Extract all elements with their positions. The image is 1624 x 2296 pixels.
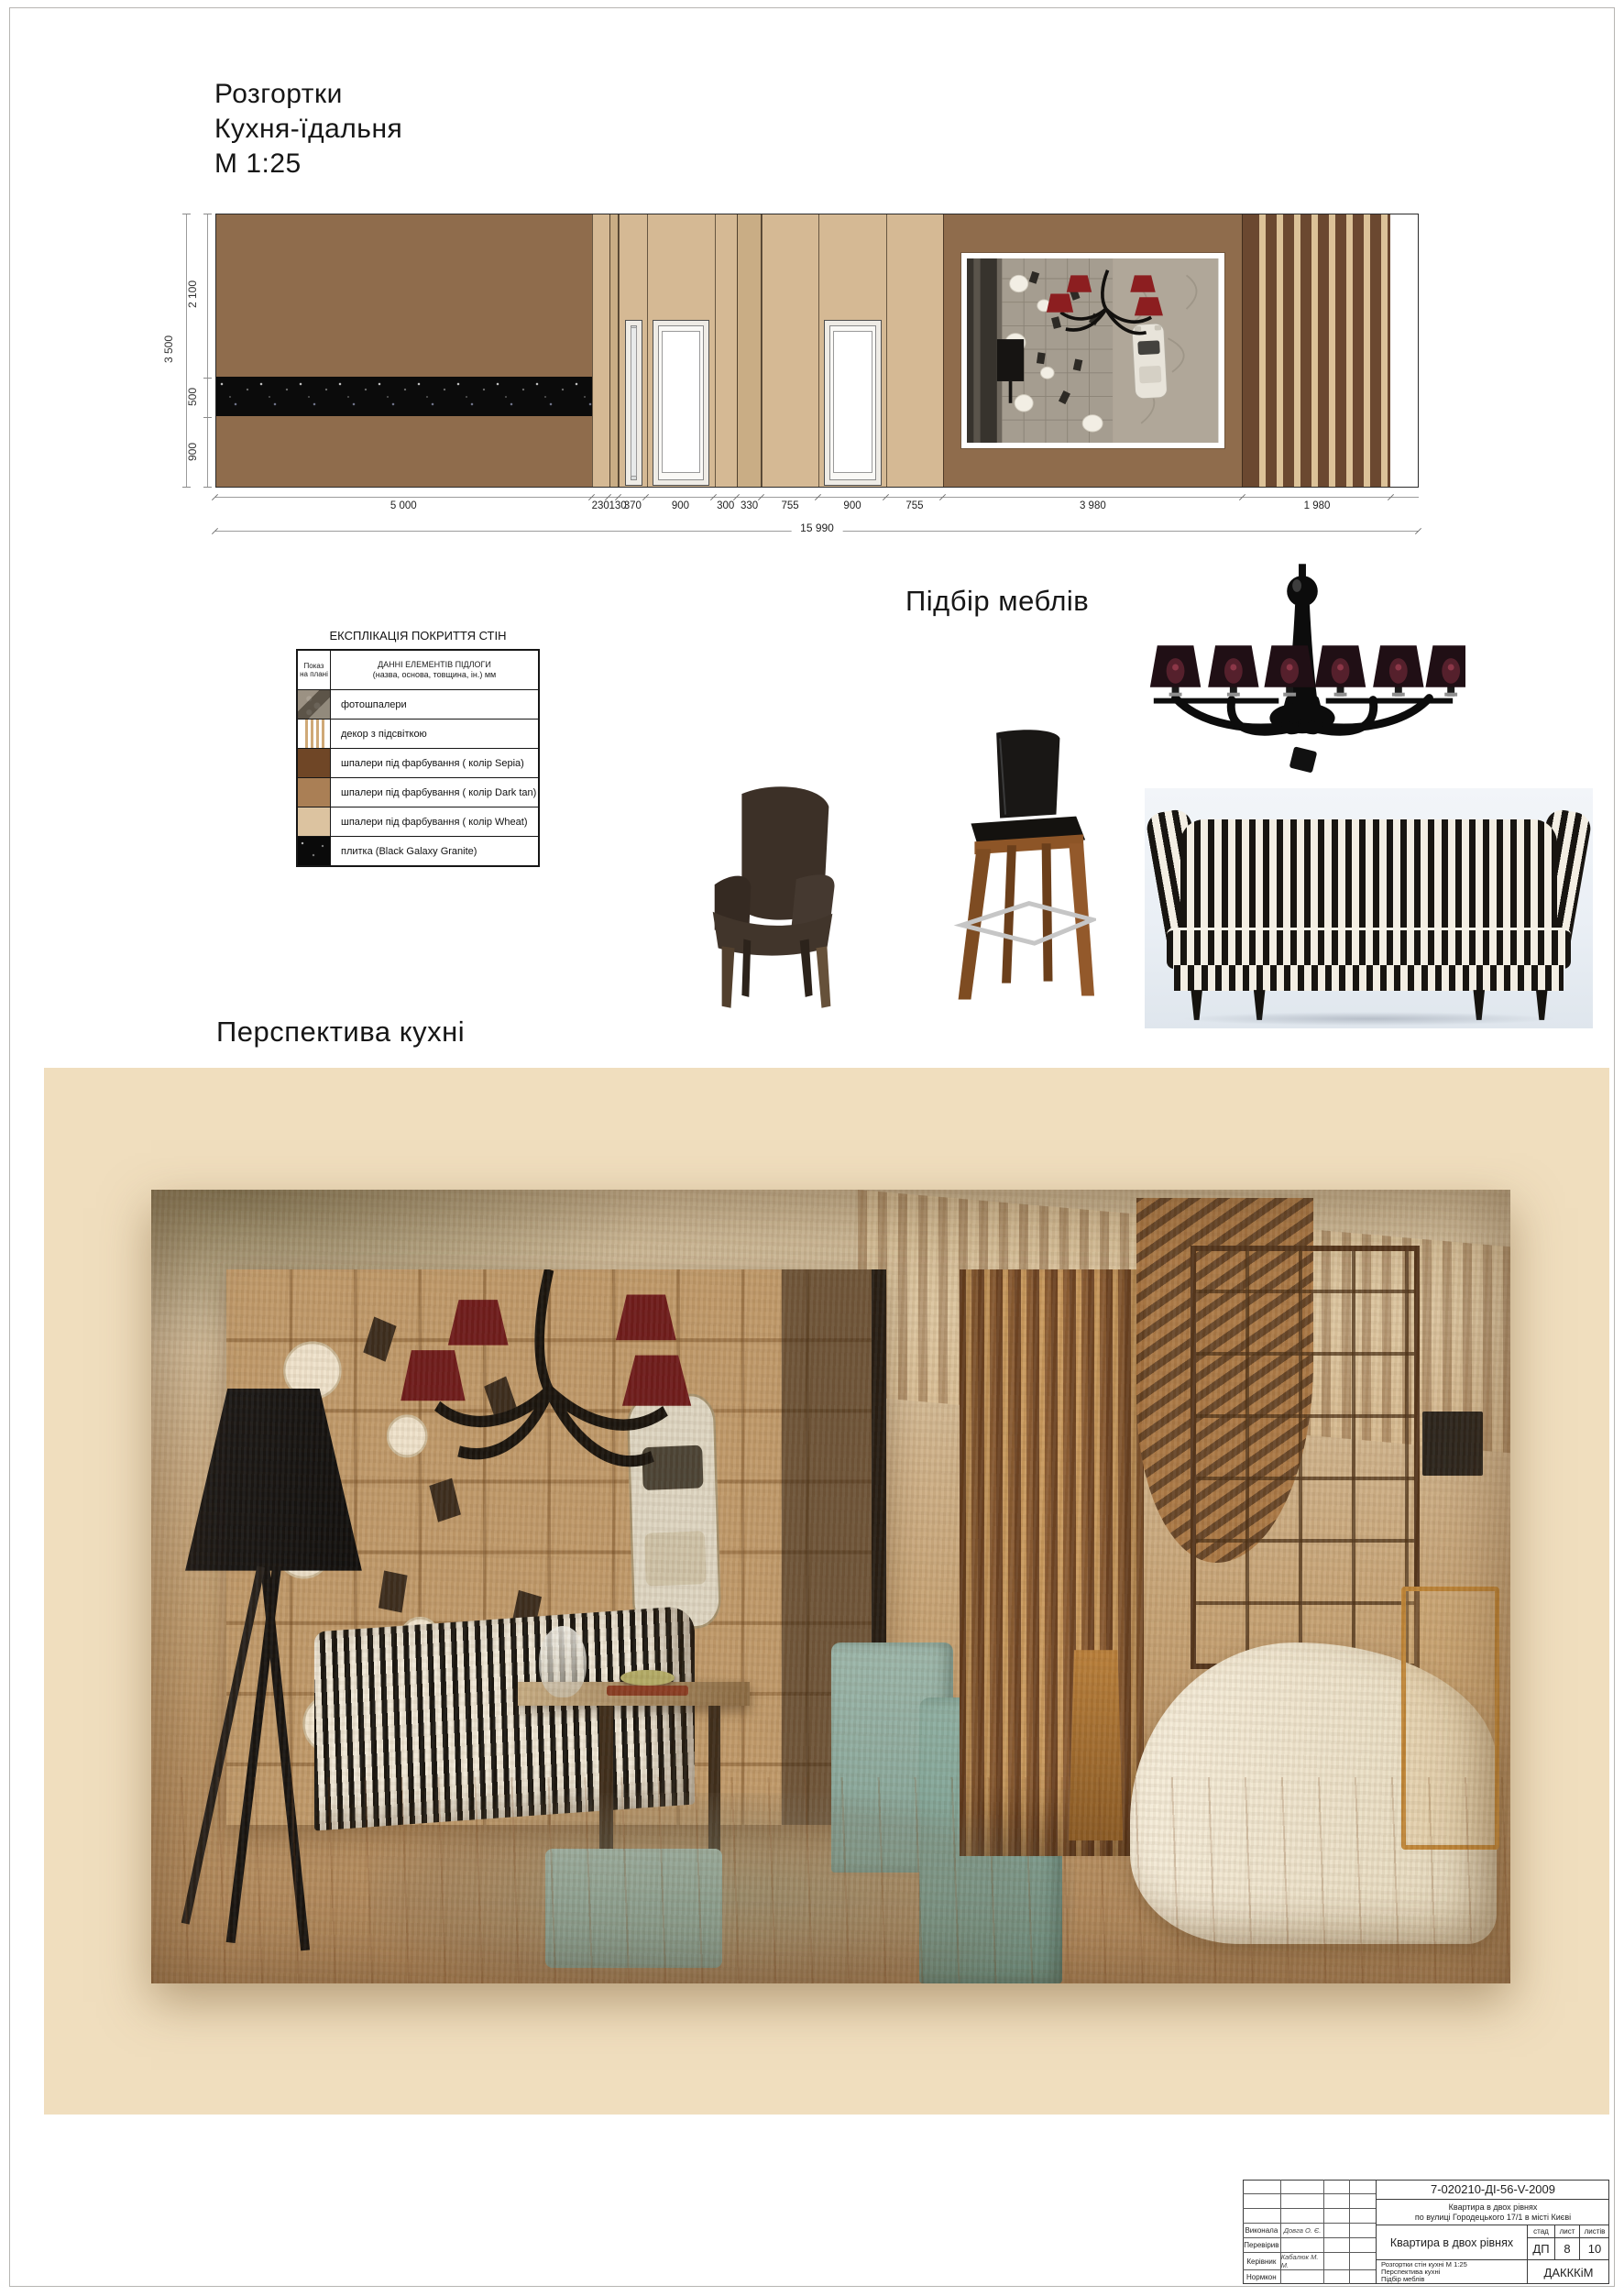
dim-mark [182,487,191,488]
kitchen-wall-elevation [215,214,1419,488]
dim-segment-label: 755 [762,493,818,515]
legend-swatch-plain [298,749,331,777]
object-description: Квартира в двох рівнях по вулиці Городец… [1377,2200,1609,2225]
legend-title: ЕКСПЛІКАЦІЯ ПОКРИТТЯ СТІН [296,629,540,643]
project-title-cell: Квартира в двох рівнях [1377,2225,1528,2260]
sheet-title-line3: М 1:25 [214,147,402,181]
signature-cell [1324,2238,1350,2252]
signature-name [1281,2238,1325,2252]
dim-segment-label: 330 [737,493,762,515]
signature-cell [1243,2209,1281,2223]
dim-mark [203,417,212,418]
armchair-image [689,777,861,1014]
bar-stool-icon [924,722,1096,1014]
signature-cell [1281,2180,1325,2193]
legend-row-label: шпалери під фарбування ( колір Sepia) [331,749,538,777]
signature-cell [1324,2209,1350,2223]
signature-cell [1324,2194,1350,2208]
dim-segment-label: 3 980 [943,493,1243,515]
sofa-shadow [1180,1012,1557,1027]
dim-mark [203,378,212,379]
document-number: 7-020210-ДІ-56-V-2009 [1377,2180,1609,2200]
sheet-title: Розгортки Кухня-їдальня М 1:25 [214,77,402,181]
legend-header-data-line2: (назва, основа, товщина, ін.) мм [373,670,496,680]
object-line2: по вулиці Городецького 17/1 в місті Києв… [1415,2213,1571,2223]
dim-label-900: 900 [186,434,199,470]
signature-row: Нормкон [1243,2270,1376,2284]
sheet-contents-line3: Підбір меблів [1381,2276,1527,2283]
striped-sofa-image [1145,788,1593,1028]
sheet-title-line2: Кухня-їдальня [214,112,402,147]
elevation-segment-370mm [619,214,646,487]
dim-segment-label: 5 000 [215,493,592,515]
dim-segment-label: 755 [886,493,943,515]
signature-cell [1281,2209,1325,2223]
signature-cell [1324,2270,1350,2284]
legend-table: Показ на плані ДАННІ ЕЛЕМЕНТІВ ПІДЛОГИ (… [296,649,540,867]
stage-sheet-values: ДП 8 10 [1528,2238,1609,2259]
dim-segment-label: 370 [619,493,646,515]
elevation-segment-300mm [715,214,738,487]
signature-row-blank [1243,2180,1376,2194]
signature-cell [1350,2238,1376,2252]
signature-row-blank [1243,2209,1376,2224]
legend-row-label: декор з підсвіткою [331,720,538,748]
chandelier-image [1139,553,1465,784]
sheet-contents: Розгортки стін кухні М 1:25 Перспектива … [1377,2260,1528,2284]
stage-sheet-grid: стад лист листів ДП 8 10 [1528,2225,1609,2260]
sheet-label: лист [1555,2225,1580,2237]
legend-header-symbol: Показ на плані [298,651,331,689]
signature-role: Керівник [1243,2253,1281,2269]
dim-mark [203,487,212,488]
title-block: ВиконалаДовга О. Є.ПеревіривКерівникКаба… [1243,2180,1609,2284]
signature-cell [1350,2224,1376,2237]
legend-swatch-granite [298,837,331,865]
title-block-signatures: ВиконалаДовга О. Є.ПеревіривКерівникКаба… [1243,2180,1377,2284]
signature-cell [1243,2194,1281,2208]
elevation-segment-230mm [592,214,609,487]
legend-swatch-backlit [298,720,331,748]
persp-vignette [151,1190,1510,1983]
elevation-segment-900mm [818,214,886,487]
sheet-value: 8 [1555,2238,1580,2259]
elevation-segment-755mm [762,214,818,487]
kitchen-perspective-rendering [151,1190,1510,1983]
dim-label-500: 500 [186,379,199,415]
signature-cell [1324,2253,1350,2269]
signature-cell [1350,2270,1376,2284]
legend-row: шпалери під фарбування ( колір Sepia) [298,748,538,777]
dim-line-height-segments [207,214,208,488]
legend-swatch-plain [298,778,331,807]
dim-row-segments: 5 0002301303709003003307559007553 9801 9… [215,493,1419,515]
legend-row: шпалери під фарбування ( колір Wheat) [298,807,538,836]
signature-cell [1281,2194,1325,2208]
perspective-section-title: Перспектива кухні [216,1016,465,1049]
dim-mark [203,214,212,214]
signature-row: КерівникКабалюк М. М. [1243,2253,1376,2270]
dim-tick [212,494,218,500]
elevation-segment-130mm [609,214,620,487]
signature-cell [1350,2253,1376,2269]
signature-name: Довга О. Є. [1281,2224,1325,2237]
dim-segment-label: 900 [646,493,714,515]
title-block-main: 7-020210-ДІ-56-V-2009 Квартира в двох рі… [1377,2180,1609,2284]
signature-name: Кабалюк М. М. [1281,2253,1325,2269]
elevation-segment-330mm [737,214,762,487]
granite-tile-band [216,377,592,416]
stage-label: стад [1528,2225,1555,2237]
narrow-glass-door [625,320,642,486]
dim-label-3500: 3 500 [162,320,175,379]
legend-row: плитка (Black Galaxy Granite) [298,836,538,865]
signature-cell [1350,2194,1376,2208]
wall-finish-legend: ЕКСПЛІКАЦІЯ ПОКРИТТЯ СТІН Показ на плані… [296,629,540,867]
sheets-label: листів [1580,2225,1609,2237]
signature-row: Перевірив [1243,2238,1376,2253]
signature-name [1281,2270,1325,2284]
elevation-segment-3980mm [943,214,1242,487]
signature-cell [1243,2180,1281,2193]
legend-row-label: плитка (Black Galaxy Granite) [331,837,538,865]
signature-cell [1350,2209,1376,2223]
signature-cell [1324,2180,1350,2193]
stage-value: ДП [1528,2238,1555,2259]
legend-row-label: шпалери під фарбування ( колір Wheat) [331,807,538,836]
dim-label-2100: 2 100 [186,265,199,324]
photo-wallpaper-mural [961,253,1223,449]
legend-header-data-line1: ДАННІ ЕЛЕМЕНТІВ ПІДЛОГИ [378,660,491,670]
dim-segment-label: 300 [714,493,737,515]
legend-row: фотошпалери [298,690,538,719]
signature-role: Нормкон [1243,2270,1281,2284]
legend-header-row: Показ на плані ДАННІ ЕЛЕМЕНТІВ ПІДЛОГИ (… [298,651,538,690]
dim-tick [1415,528,1421,534]
dim-row-total: 15 990 [215,524,1419,544]
legend-row: декор з підсвіткою [298,719,538,748]
signature-cell [1350,2180,1376,2193]
stage-sheet-header: стад лист листів [1528,2225,1609,2238]
signature-role: Перевірив [1243,2238,1281,2252]
black-chandelier-icon [1139,553,1465,784]
door [824,320,882,486]
furniture-section-title: Підбір меблів [905,585,1089,618]
dark-armchair-icon [689,777,861,1014]
signature-role: Виконала [1243,2224,1281,2237]
bar-stool-image [924,722,1096,1014]
sofa-skirt [1174,965,1564,992]
legend-swatch-photo [298,690,331,719]
elevation-segment-1980mm [1242,214,1390,487]
object-line1: Квартира в двох рівнях [1449,2203,1538,2213]
organization-name: ДАКККіМ [1528,2260,1609,2284]
elevation-segment-755mm [886,214,943,487]
dim-segment-label: 1 980 [1243,493,1392,515]
dim-mark [182,214,191,214]
signature-row: ВиконалаДовга О. Є. [1243,2224,1376,2238]
sofa-seat-cushion [1167,928,1570,969]
dim-label-total-width: 15 990 [791,522,843,534]
dim-segment-label: 900 [818,493,886,515]
signature-row-blank [1243,2194,1376,2209]
elevation-segment-900mm [647,214,715,487]
legend-row-label: фотошпалери [331,690,538,719]
legend-swatch-plain [298,807,331,836]
sheets-value: 10 [1580,2238,1609,2259]
elevation-segment-5000mm [216,214,592,487]
legend-row-label: шпалери під фарбування ( колір Dark tan) [331,778,538,807]
sheet-title-line1: Розгортки [214,77,402,112]
dim-tick [1388,494,1394,500]
project-sheet: Розгортки Кухня-їдальня М 1:25 3 500 [0,0,1624,2296]
legend-header-data: ДАННІ ЕЛЕМЕНТІВ ПІДЛОГИ (назва, основа, … [331,651,538,689]
legend-row: шпалери під фарбування ( колір Dark tan) [298,777,538,807]
signature-cell [1324,2224,1350,2237]
door [653,320,710,486]
dim-segment-label: 230 [592,493,609,515]
